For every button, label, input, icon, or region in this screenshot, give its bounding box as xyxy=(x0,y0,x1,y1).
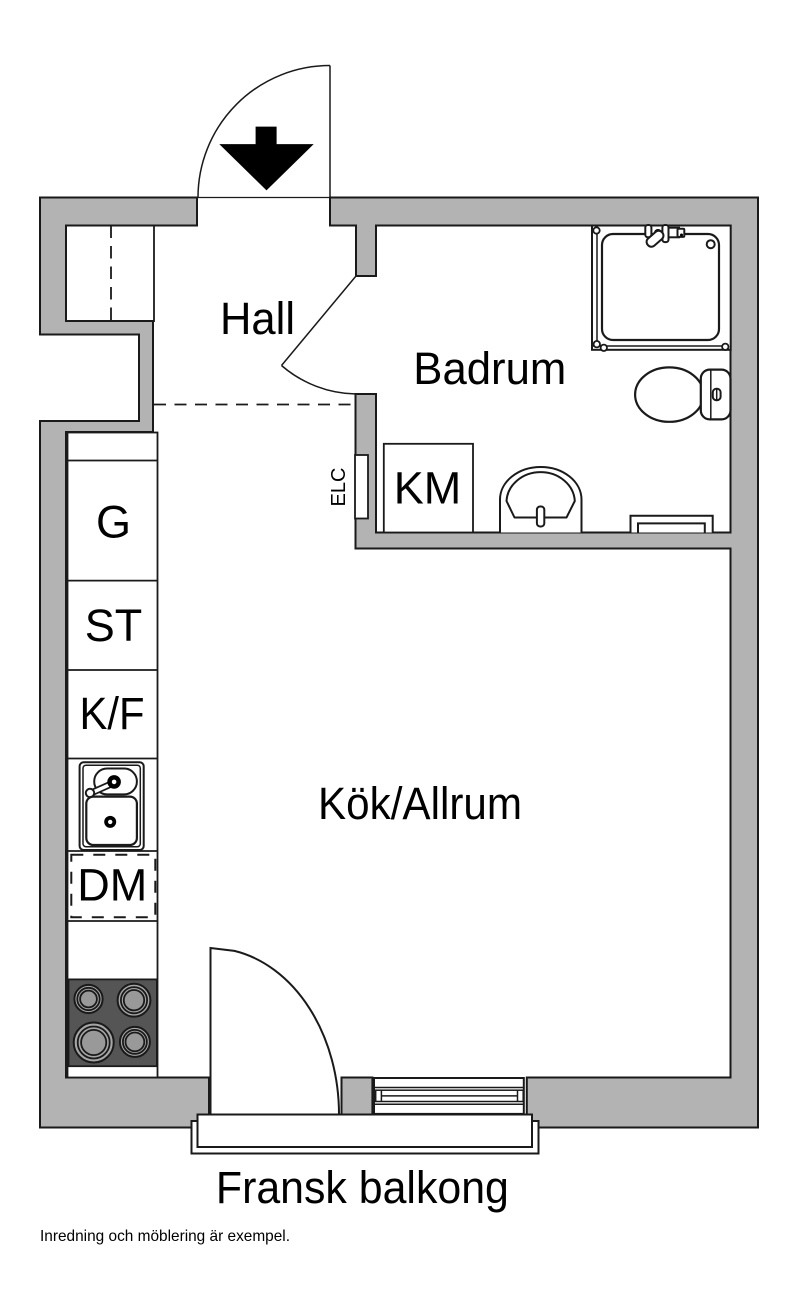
svg-text:Kök/Allrum: Kök/Allrum xyxy=(318,778,522,829)
svg-text:Fransk balkong: Fransk balkong xyxy=(216,1162,509,1213)
svg-text:Inredning och möblering är exe: Inredning och möblering är exempel. xyxy=(40,1228,290,1245)
svg-text:ELC: ELC xyxy=(328,468,350,507)
svg-text:KM: KM xyxy=(394,462,462,513)
svg-text:DM: DM xyxy=(77,860,147,911)
svg-text:G: G xyxy=(96,497,131,548)
svg-text:ST: ST xyxy=(85,600,143,651)
svg-text:K/F: K/F xyxy=(80,688,145,739)
svg-text:Hall: Hall xyxy=(220,293,295,344)
svg-text:Badrum: Badrum xyxy=(413,343,566,394)
